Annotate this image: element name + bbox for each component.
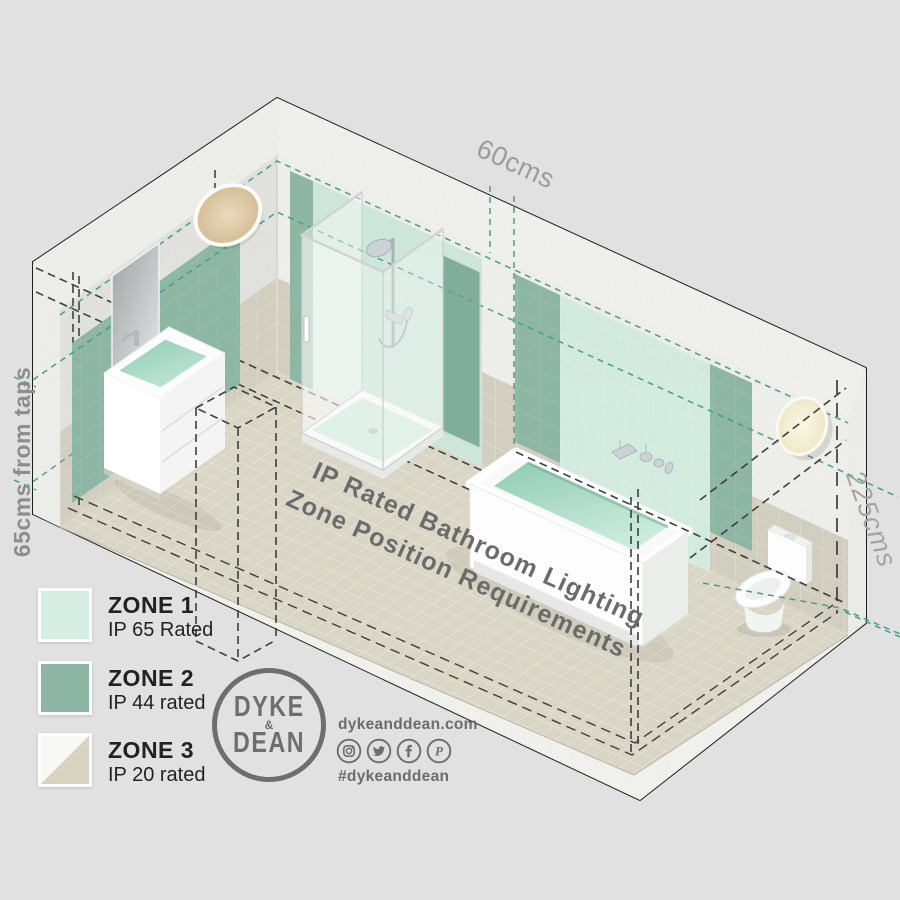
- shower-glass-front: [302, 235, 383, 470]
- website-url: dykeanddean.com: [338, 716, 478, 734]
- zone3-label: ZONE 3: [108, 737, 205, 763]
- legend-item-zone2: ZONE 2 IP 44 rated: [38, 661, 205, 716]
- zone3-rating: IP 20 rated: [108, 763, 205, 788]
- instagram-icon: [336, 738, 362, 764]
- shower-glass-door: [443, 255, 480, 448]
- shower-door-handle: [304, 316, 309, 342]
- zone2-swatch: [38, 661, 92, 715]
- pinterest-icon: P: [426, 738, 452, 764]
- logo-text-bottom: DEAN: [233, 731, 305, 756]
- legend-item-zone3: ZONE 3 IP 20 rated: [38, 733, 205, 788]
- facebook-icon: [396, 738, 422, 764]
- zone2-rating: IP 44 rated: [108, 691, 205, 716]
- zone3-swatch: [38, 733, 92, 787]
- bathroom-lighting-infographic: IP Rated Bathroom Lighting Zone Position…: [0, 0, 900, 900]
- width-dimension-label: 60cms: [472, 133, 559, 194]
- zone1-swatch: [38, 588, 92, 642]
- logo-text-top: DYKE: [234, 695, 305, 720]
- tap-distance-label: 65cms from taps: [9, 367, 35, 557]
- zone1-rating: IP 65 Rated: [108, 618, 213, 643]
- zone1-label: ZONE 1: [108, 592, 213, 618]
- svg-text:P: P: [435, 744, 444, 759]
- zone2-label: ZONE 2: [108, 665, 205, 691]
- hashtag: #dykeanddean: [338, 768, 449, 786]
- dyke-and-dean-logo: DYKE & DEAN: [212, 668, 326, 782]
- legend-item-zone1: ZONE 1 IP 65 Rated: [38, 588, 213, 643]
- social-icons-row: P: [336, 738, 452, 764]
- twitter-icon: [366, 738, 392, 764]
